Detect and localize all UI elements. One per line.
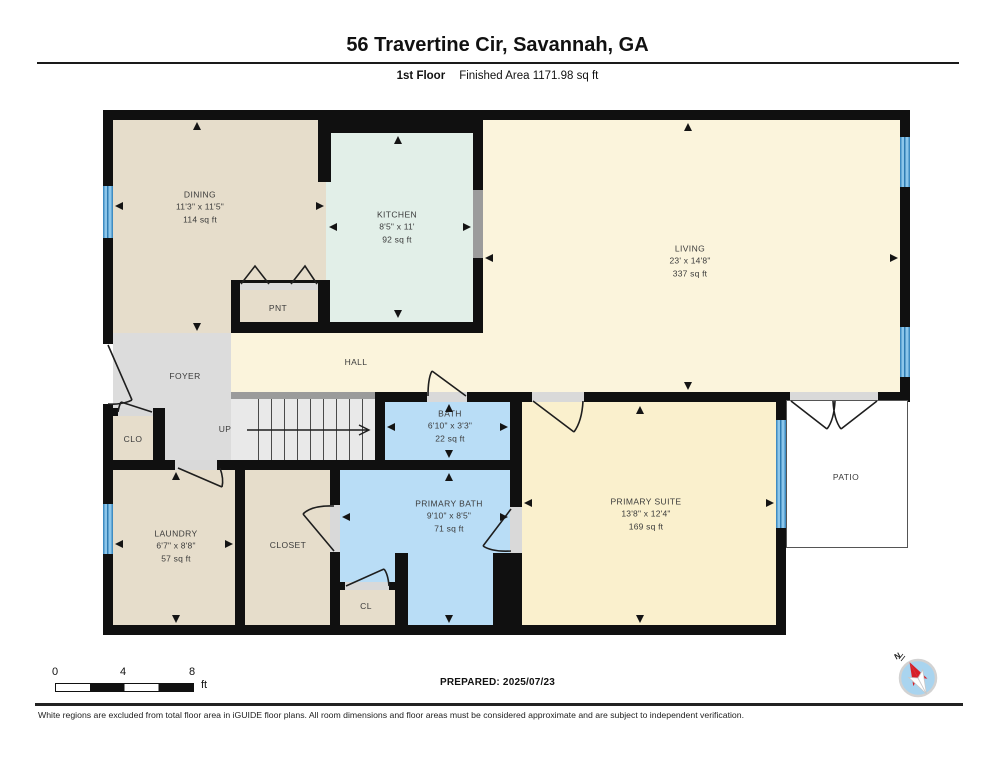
dimension-arrow bbox=[316, 202, 324, 210]
room-name: KITCHEN bbox=[377, 209, 417, 221]
room-label-kitchen: KITCHEN 8'5" x 11' 92 sq ft bbox=[377, 209, 417, 246]
room-area: 337 sq ft bbox=[669, 267, 710, 279]
room-dims: 13'8" x 12'4" bbox=[610, 508, 681, 520]
stairs-up-label: UP bbox=[219, 423, 232, 435]
dimension-arrow bbox=[766, 499, 774, 507]
dimension-arrow bbox=[445, 615, 453, 623]
room-area: 114 sq ft bbox=[176, 213, 224, 225]
room-label-bath: BATH 6'10" x 3'3" 22 sq ft bbox=[428, 408, 472, 445]
room-label-patio: PATIO bbox=[833, 471, 859, 483]
dimension-arrow bbox=[394, 136, 402, 144]
dimension-arrow bbox=[684, 123, 692, 131]
room-label-laundry: LAUNDRY 6'7" x 8'8" 57 sq ft bbox=[154, 528, 197, 565]
room-label-pnt: PNT bbox=[269, 302, 287, 314]
room-name: CLOSET bbox=[270, 539, 306, 551]
dimension-arrow bbox=[172, 472, 180, 480]
room-name: CLO bbox=[124, 433, 143, 445]
entry-door bbox=[108, 345, 132, 404]
room-name: DINING bbox=[176, 189, 224, 201]
prepared-date: PREPARED: 2025/07/23 bbox=[0, 677, 995, 688]
laundry-door bbox=[178, 468, 223, 487]
room-label-foyer: FOYER bbox=[169, 370, 200, 382]
room-dims: 11'3" x 11'5" bbox=[176, 201, 224, 213]
dimension-arrow bbox=[463, 223, 471, 231]
room-label-hall: HALL bbox=[345, 356, 368, 368]
room-name: CL bbox=[360, 600, 372, 612]
floor-plan: DINING 11'3" x 11'5" 114 sq ft KITCHEN 8… bbox=[0, 0, 995, 768]
room-label-primary-bath: PRIMARY BATH 9'10" x 8'5" 71 sq ft bbox=[415, 498, 483, 535]
room-area: 92 sq ft bbox=[377, 233, 417, 245]
pnt-doors bbox=[241, 266, 317, 284]
dimension-arrow bbox=[636, 406, 644, 414]
room-label-closet: CLOSET bbox=[270, 539, 306, 551]
dimension-arrow bbox=[524, 499, 532, 507]
dimension-arrow bbox=[445, 450, 453, 458]
room-name: PRIMARY BATH bbox=[415, 498, 483, 510]
dimension-arrow bbox=[890, 254, 898, 262]
room-name: LIVING bbox=[669, 243, 710, 255]
dimension-arrow bbox=[115, 540, 123, 548]
dimension-arrow bbox=[172, 615, 180, 623]
dimension-arrow bbox=[636, 615, 644, 623]
room-area: 71 sq ft bbox=[415, 522, 483, 534]
room-dims: 6'10" x 3'3" bbox=[428, 420, 472, 432]
room-name: UP bbox=[219, 423, 232, 435]
dimension-arrow bbox=[329, 223, 337, 231]
dimension-arrow bbox=[445, 404, 453, 412]
dimension-arrow bbox=[115, 202, 123, 210]
door-swings-overlay bbox=[0, 0, 995, 768]
dimension-arrow bbox=[394, 310, 402, 318]
bath-door bbox=[428, 371, 466, 396]
dimension-arrow bbox=[342, 513, 350, 521]
disclaimer-text: White regions are excluded from total fl… bbox=[38, 710, 744, 720]
room-name: HALL bbox=[345, 356, 368, 368]
room-label-living: LIVING 23' x 14'8" 337 sq ft bbox=[669, 243, 710, 280]
cl-door bbox=[346, 569, 389, 586]
footer-divider bbox=[35, 703, 963, 706]
floor-plan-page: { "header": { "title": "56 Travertine Ci… bbox=[0, 0, 995, 768]
room-name: PNT bbox=[269, 302, 287, 314]
dimension-arrow bbox=[684, 382, 692, 390]
room-dims: 8'5" x 11' bbox=[377, 221, 417, 233]
stairs-up-arrow bbox=[247, 425, 369, 435]
room-dims: 23' x 14'8" bbox=[669, 255, 710, 267]
room-area: 57 sq ft bbox=[154, 552, 197, 564]
room-name: PATIO bbox=[833, 471, 859, 483]
dimension-arrow bbox=[500, 513, 508, 521]
room-area: 22 sq ft bbox=[428, 432, 472, 444]
room-area: 169 sq ft bbox=[610, 520, 681, 532]
closet-door bbox=[303, 506, 334, 551]
dimension-arrow bbox=[225, 540, 233, 548]
room-dims: 6'7" x 8'8" bbox=[154, 540, 197, 552]
dimension-arrow bbox=[193, 122, 201, 130]
room-name: FOYER bbox=[169, 370, 200, 382]
compass-icon: N bbox=[885, 648, 947, 704]
dimension-arrow bbox=[500, 423, 508, 431]
dimension-arrow bbox=[445, 473, 453, 481]
primary-suite-door bbox=[533, 401, 583, 432]
room-label-primary-suite: PRIMARY SUITE 13'8" x 12'4" 169 sq ft bbox=[610, 496, 681, 533]
dimension-arrow bbox=[485, 254, 493, 262]
room-label-dining: DINING 11'3" x 11'5" 114 sq ft bbox=[176, 189, 224, 226]
room-name: LAUNDRY bbox=[154, 528, 197, 540]
room-label-cl: CL bbox=[360, 600, 372, 612]
patio-french-doors bbox=[791, 401, 877, 429]
clo-door bbox=[118, 402, 152, 412]
room-name: PRIMARY SUITE bbox=[610, 496, 681, 508]
dimension-arrow bbox=[387, 423, 395, 431]
dimension-arrow bbox=[193, 323, 201, 331]
room-dims: 9'10" x 8'5" bbox=[415, 510, 483, 522]
room-label-clo: CLO bbox=[124, 433, 143, 445]
